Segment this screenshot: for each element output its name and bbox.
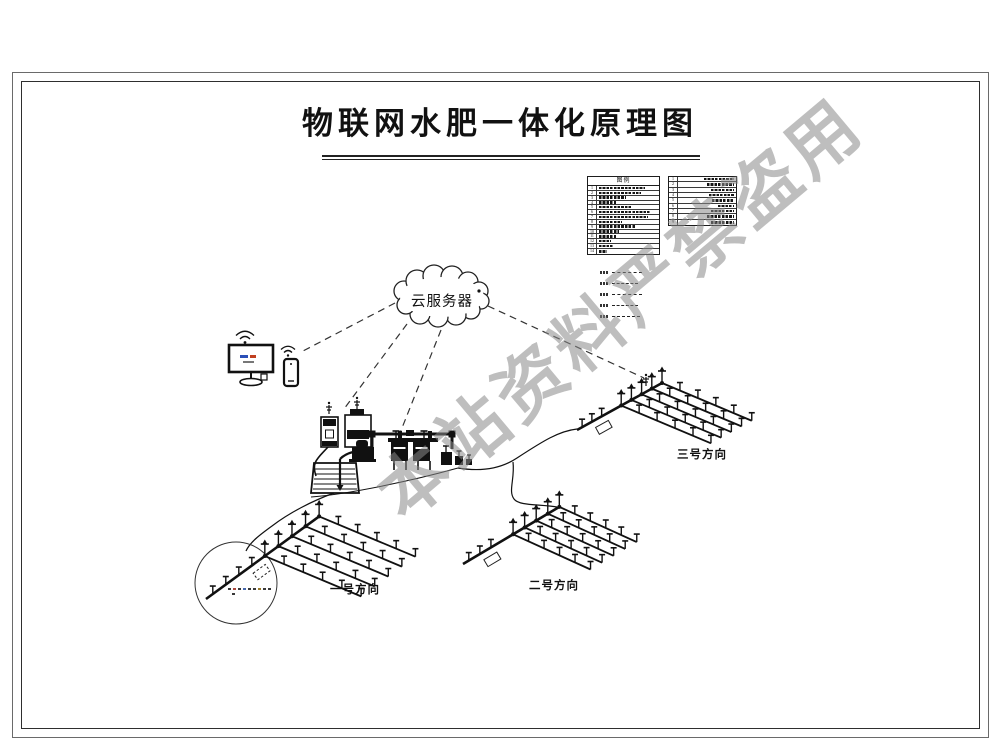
- monitor-icon: [229, 345, 273, 386]
- legend-row-number: 9: [588, 225, 597, 229]
- line-type-sample: [600, 300, 642, 311]
- legend-row-number: 12: [588, 239, 597, 243]
- legend-row-text: [711, 210, 734, 212]
- legend-row-text: [599, 230, 619, 232]
- link-cloud-to-tanks: [344, 324, 407, 409]
- legend-row-text: [704, 178, 734, 180]
- sprinkler-grid: [206, 500, 418, 599]
- legend-row-number: 9: [669, 220, 678, 225]
- link-cloud-to-controller: [398, 330, 441, 438]
- legend-row-number: 13: [588, 244, 597, 248]
- diagram-canvas: [0, 0, 1000, 750]
- flow-meter-icon: [484, 552, 501, 567]
- legend-row-text: [707, 215, 734, 217]
- legend-row-text: [599, 245, 614, 247]
- valve-cluster-icon: [441, 446, 472, 465]
- field-3-label: 三号方向: [677, 446, 727, 462]
- line-type-sample: [600, 278, 642, 289]
- legend-title: 图例: [588, 177, 659, 186]
- legend-row-number: 1: [588, 186, 597, 190]
- legend-row-text: [599, 216, 648, 218]
- legend-row-text: [712, 199, 734, 201]
- legend-row-number: 5: [669, 198, 678, 202]
- legend-row-number: 6: [588, 210, 597, 214]
- legend-row-number: 3: [588, 196, 597, 200]
- legend-row: 14: [588, 249, 659, 254]
- legend-row-number: 6: [669, 204, 678, 208]
- cloud-server-label: 云服务器: [403, 290, 481, 311]
- legend-row-number: 1: [669, 177, 678, 181]
- antenna-icon: [354, 397, 360, 409]
- legend-row-text: [709, 194, 734, 196]
- line-type-sample: [600, 311, 642, 322]
- legend-row-text: [707, 183, 734, 185]
- legend-row-text: [599, 235, 616, 237]
- legend-row-number: 11: [588, 234, 597, 238]
- legend-row-number: 4: [588, 201, 597, 205]
- legend-row-number: 3: [669, 188, 678, 192]
- legend-row-text: [711, 189, 734, 191]
- pipeline-to-field2: [512, 462, 557, 507]
- pipeline-to-field1: [246, 493, 334, 551]
- antenna-icon: [326, 402, 332, 414]
- sprinkler-grids: [206, 367, 755, 600]
- legend-row-number: 2: [669, 182, 678, 186]
- legend-row-text: [599, 221, 622, 223]
- flow-meter-icon: [253, 564, 270, 579]
- flow-meter-icon: [596, 420, 613, 434]
- sprinkler-grid: [463, 490, 640, 569]
- legend-row: 9: [669, 220, 736, 225]
- dosing-tank-icon: [321, 417, 338, 447]
- phone-icon: [284, 359, 298, 386]
- legend-right-rows: 123456789: [669, 177, 736, 225]
- legend-table-secondary: 123456789: [668, 176, 737, 226]
- legend-left-rows: 1234567891011121314: [588, 186, 659, 254]
- legend-row-number: 7: [588, 215, 597, 219]
- legend-row-text: [599, 240, 611, 242]
- drawing-sheet: 物联网水肥一体化原理图 本站资料严禁盗用 图例 1234567891011121…: [0, 0, 1000, 750]
- legend-row-number: 8: [588, 220, 597, 224]
- legend-row-text: [599, 225, 635, 227]
- legend-row-text: [599, 187, 645, 189]
- wifi-icon-phone: [281, 346, 295, 356]
- legend-row-number: 5: [588, 205, 597, 209]
- legend-row-number: 7: [669, 209, 678, 213]
- wifi-icon: [236, 331, 254, 344]
- link-cloud-to-pc: [303, 303, 395, 351]
- legend-row-number: 14: [588, 249, 597, 254]
- field-1-label: 一号方向: [330, 581, 380, 597]
- legend-row-number: 10: [588, 230, 597, 234]
- legend-row-text: [599, 206, 631, 208]
- line-type-sample: [600, 289, 642, 300]
- field-2-label: 二号方向: [529, 577, 579, 593]
- legend-row-number: 2: [588, 191, 597, 195]
- legend-row-text: [718, 205, 734, 207]
- legend-row-text: [599, 196, 626, 198]
- legend-row-text: [599, 192, 641, 194]
- legend-table: 图例 1234567891011121314: [587, 176, 660, 255]
- antenna-icon: [643, 374, 649, 386]
- dosing-hose: [314, 447, 328, 476]
- sprinkler-grid: [577, 367, 755, 444]
- legend-row-text: [599, 201, 616, 203]
- legend-row-text: [599, 250, 607, 252]
- pipeline-to-field3: [458, 429, 577, 470]
- legend-line-samples: [600, 267, 642, 322]
- legend-row-number: 8: [669, 214, 678, 218]
- detail-annotation: [228, 589, 271, 594]
- legend-row-text: [711, 221, 734, 223]
- legend-row-text: [599, 211, 650, 213]
- line-type-sample: [600, 267, 642, 278]
- legend-row-number: 4: [669, 193, 678, 197]
